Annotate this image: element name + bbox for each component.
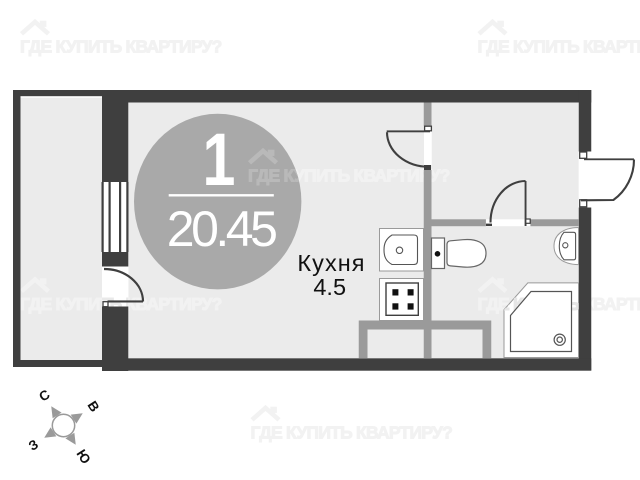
svg-text:Кухня: Кухня <box>297 250 365 276</box>
svg-text:1: 1 <box>203 119 236 202</box>
svg-text:4.5: 4.5 <box>313 274 346 300</box>
svg-text:20.45: 20.45 <box>167 201 276 257</box>
